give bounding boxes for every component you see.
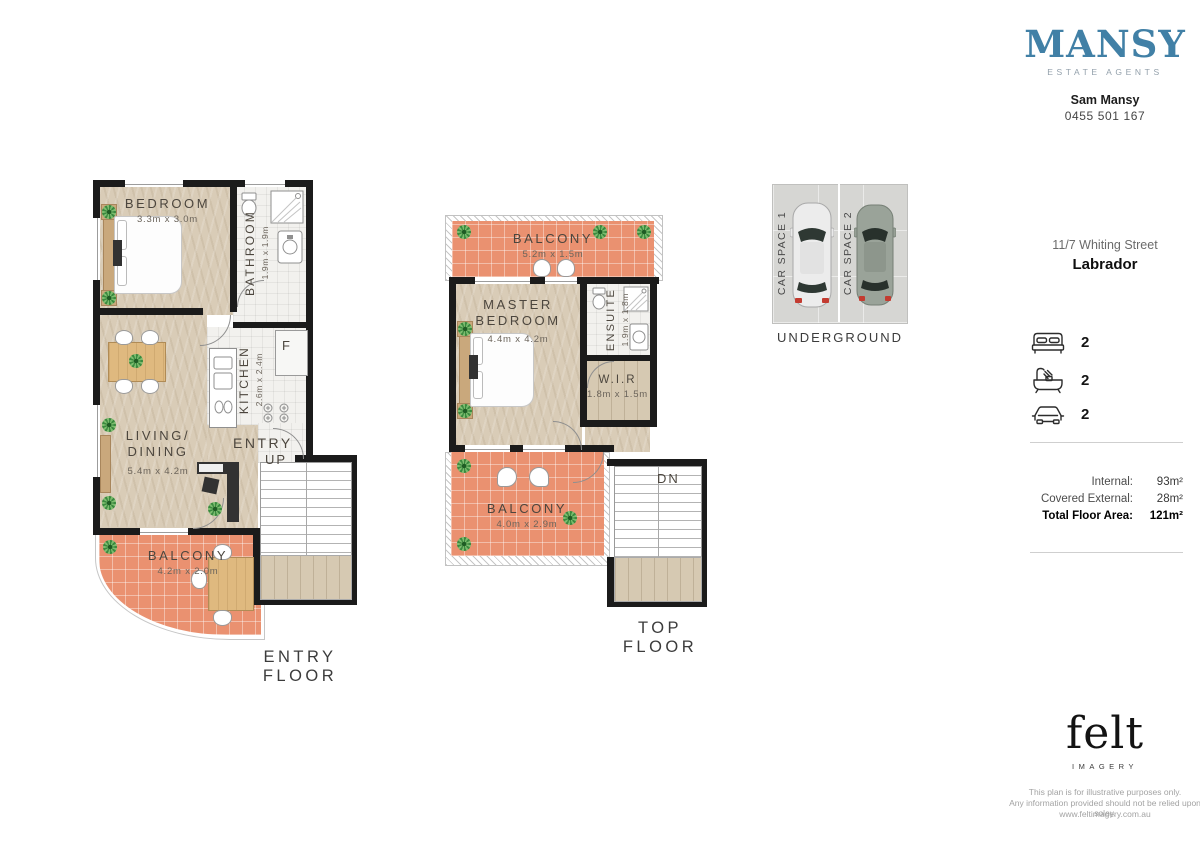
room-name: MASTER xyxy=(463,297,573,313)
shower xyxy=(270,190,304,224)
car-icon xyxy=(1030,403,1066,426)
top-floor-plan: BALCONY 5.2m x 1.5m xyxy=(445,215,715,645)
room-name: LIVING/ xyxy=(103,428,213,444)
room-dims: 5.4m x 4.2m xyxy=(103,466,213,478)
plant xyxy=(102,496,116,510)
chair xyxy=(141,330,159,345)
wall xyxy=(607,557,614,607)
entry-balcony-label: BALCONY 4.2m x 2.0m xyxy=(133,548,243,578)
entry-label: ENTRY xyxy=(233,435,293,451)
window xyxy=(465,445,510,452)
room-dims: 3.3m x 3.0m xyxy=(110,214,225,226)
car-space-1-label: CAR SPACE 1 xyxy=(776,192,788,314)
desk xyxy=(227,462,239,522)
room-dims: 4.0m x 2.9m xyxy=(467,519,587,531)
room-dims: 2.6m x 2.4m xyxy=(254,353,264,406)
agency-logo-text: MANSY xyxy=(1020,26,1190,63)
plant xyxy=(457,537,471,551)
room-dims: 4.4m x 4.2m xyxy=(463,334,573,346)
fridge-label: F xyxy=(282,338,292,353)
bath-icon xyxy=(1030,366,1066,394)
master-bedroom-label: MASTER BEDROOM 4.4m x 4.2m xyxy=(463,297,573,345)
entry-text: ENTRY xyxy=(233,435,293,451)
window xyxy=(475,277,530,284)
floorplan-sheet: BEDROOM 3.3m x 3.0m BATHROOM 1.9m x 1.9m… xyxy=(0,0,1200,848)
stat-total: Total Floor Area: 121m² xyxy=(1020,510,1183,522)
fridge-letter: F xyxy=(282,338,292,353)
cooktop xyxy=(260,402,302,424)
wall xyxy=(93,308,203,315)
top-balcony1-label: BALCONY 5.2m x 1.5m xyxy=(493,231,613,261)
wall xyxy=(306,180,313,462)
wall xyxy=(580,355,657,361)
up-text: UP xyxy=(265,452,287,467)
cars-count: 2 xyxy=(1081,406,1089,423)
wall xyxy=(650,277,657,427)
room-name: BEDROOM xyxy=(110,196,225,212)
stat-label: Internal: xyxy=(1091,476,1133,488)
stat-value: 28m² xyxy=(1133,493,1183,505)
window xyxy=(125,180,183,187)
stat-value: 121m² xyxy=(1133,510,1183,522)
chair xyxy=(529,467,549,487)
wall xyxy=(449,277,456,452)
feature-cars: 2 xyxy=(1030,403,1089,426)
caption-text: ENTRY FLOOR xyxy=(263,648,337,685)
agency-logo: MANSY ESTATE AGENTS xyxy=(1020,26,1190,77)
window xyxy=(93,405,100,477)
room-dims: 4.2m x 2.0m xyxy=(133,566,243,578)
vanity-basin xyxy=(277,230,303,264)
agency-tagline: ESTATE AGENTS xyxy=(1020,67,1190,77)
car-top-view xyxy=(854,202,896,313)
entry-floor-plan: BEDROOM 3.3m x 3.0m BATHROOM 1.9m x 1.9m… xyxy=(85,180,365,680)
chair xyxy=(213,610,232,626)
wall xyxy=(607,459,707,466)
underground-caption: UNDERGROUND xyxy=(770,330,910,345)
room-name: DINING xyxy=(103,444,213,460)
window xyxy=(545,277,577,284)
space-name: CAR SPACE 2 xyxy=(842,211,854,295)
stat-value: 93m² xyxy=(1133,476,1183,488)
window xyxy=(140,528,188,535)
bedroom-label: BEDROOM 3.3m x 3.0m xyxy=(110,196,225,226)
beds-count: 2 xyxy=(1081,334,1089,351)
desk-chair xyxy=(202,477,220,495)
imagery-logo-text: felt xyxy=(1020,712,1190,756)
caption-text: TOP FLOOR xyxy=(623,619,697,656)
chair xyxy=(141,379,159,394)
up-label: UP xyxy=(265,452,287,467)
plant xyxy=(637,225,651,239)
agent-phone[interactable]: 0455 501 167 xyxy=(1020,109,1190,123)
divider xyxy=(1030,552,1183,553)
baths-count: 2 xyxy=(1081,372,1089,389)
kitchen-label: KITCHEN 2.6m x 2.4m xyxy=(237,338,264,422)
chair xyxy=(557,259,575,277)
bed-icon xyxy=(1030,330,1066,355)
room-name: ENSUITE xyxy=(605,288,617,351)
ensuite-label: ENSUITE 1.9m x 1.8m xyxy=(605,289,630,351)
plant xyxy=(457,225,471,239)
wall xyxy=(580,420,657,427)
chair xyxy=(497,467,517,487)
room-name: BEDROOM xyxy=(463,313,573,329)
room-name: KITCHEN xyxy=(237,346,251,414)
wall xyxy=(580,281,587,361)
bathroom-label: BATHROOM 1.9m x 1.9m xyxy=(243,198,270,308)
room-dims: 1.8m x 1.5m xyxy=(585,389,650,401)
caption-text: UNDERGROUND xyxy=(777,330,903,345)
stat-external: Covered External: 28m² xyxy=(1020,493,1183,505)
room-name: W.I.R xyxy=(585,373,650,387)
feature-beds: 2 xyxy=(1030,330,1089,355)
vanity-basin xyxy=(629,323,649,351)
imagery-logo-sub: IMAGERY xyxy=(1020,762,1190,771)
stat-internal: Internal: 93m² xyxy=(1020,476,1183,488)
top-balcony2-label: BALCONY 4.0m x 2.9m xyxy=(467,501,587,531)
plant xyxy=(457,459,471,473)
plant xyxy=(129,354,143,368)
dn-label: DN xyxy=(657,471,680,486)
imagery-website[interactable]: www.feltimagery.com.au xyxy=(1005,809,1200,819)
window xyxy=(93,218,100,280)
chair xyxy=(533,259,551,277)
wall xyxy=(230,184,237,312)
room-name: BALCONY xyxy=(133,548,243,564)
entry-floor-caption: ENTRY FLOOR xyxy=(235,648,365,686)
window xyxy=(245,180,285,187)
kitchen-bench xyxy=(209,348,237,428)
car-space-2-label: CAR SPACE 2 xyxy=(842,192,854,314)
stat-label: Total Floor Area: xyxy=(1042,510,1133,522)
stair-landing xyxy=(614,557,702,602)
space-name: CAR SPACE 1 xyxy=(776,211,788,295)
disclaimer-line1: This plan is for illustrative purposes o… xyxy=(1005,787,1200,797)
living-label: LIVING/ DINING 5.4m x 4.2m xyxy=(103,428,213,477)
feature-baths: 2 xyxy=(1030,366,1089,394)
bay-divider xyxy=(838,184,840,322)
plant xyxy=(208,502,222,516)
wall xyxy=(253,532,260,605)
chair xyxy=(115,379,133,394)
room-name: BALCONY xyxy=(467,501,587,517)
car-top-view xyxy=(790,200,834,315)
stairs-up xyxy=(260,462,352,557)
divider xyxy=(1030,442,1183,443)
top-floor-caption: TOP FLOOR xyxy=(605,619,715,657)
room-dims: 1.9m x 1.8m xyxy=(620,293,630,346)
room-dims: 5.2m x 1.5m xyxy=(493,249,613,261)
fridge-space xyxy=(275,330,308,376)
wall xyxy=(233,322,313,328)
wall xyxy=(295,455,357,462)
dn-text: DN xyxy=(657,471,680,486)
room-name: BALCONY xyxy=(493,231,613,247)
sidebar: MANSY ESTATE AGENTS Sam Mansy 0455 501 1… xyxy=(1020,0,1190,848)
wir-label: W.I.R 1.8m x 1.5m xyxy=(585,373,650,401)
stat-label: Covered External: xyxy=(1041,493,1133,505)
room-dims: 1.9m x 1.9m xyxy=(260,226,270,279)
room-name: BATHROOM xyxy=(243,210,257,296)
agent-name: Sam Mansy xyxy=(1020,93,1190,107)
address-line2: Labrador xyxy=(1020,256,1190,273)
stair-landing xyxy=(260,555,352,600)
chair xyxy=(115,330,133,345)
underground-plan: CAR SPACE 1 CAR SPACE 2 xyxy=(770,182,910,357)
plant xyxy=(103,540,117,554)
address-line1: 11/7 Whiting Street xyxy=(1020,238,1190,252)
